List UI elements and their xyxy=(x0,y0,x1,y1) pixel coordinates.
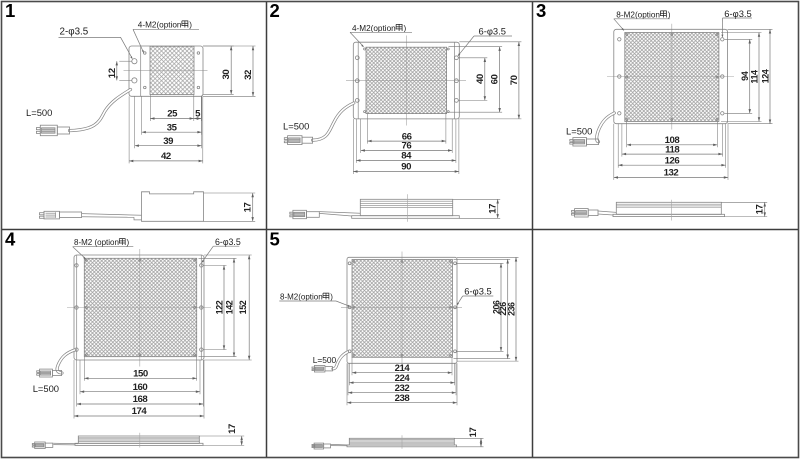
svg-text:8-M2(option: 8-M2(option xyxy=(280,293,323,302)
svg-text:40: 40 xyxy=(475,74,486,84)
svg-text:17: 17 xyxy=(755,205,766,215)
svg-text:17: 17 xyxy=(488,204,499,214)
svg-text:): ) xyxy=(404,24,407,33)
svg-text:L=500: L=500 xyxy=(566,126,592,137)
svg-text:35: 35 xyxy=(167,122,178,133)
svg-text:160: 160 xyxy=(133,382,148,393)
svg-text:118: 118 xyxy=(665,144,680,155)
svg-text:): ) xyxy=(668,11,671,20)
svg-text:4-M2(option: 4-M2(option xyxy=(138,21,182,30)
svg-text:L=500: L=500 xyxy=(313,355,337,365)
svg-text:2-φ3.5: 2-φ3.5 xyxy=(60,26,89,37)
svg-text:70: 70 xyxy=(509,75,520,85)
svg-text:8-M2 (option: 8-M2 (option xyxy=(74,238,119,247)
svg-text:30: 30 xyxy=(221,70,232,80)
svg-text:6-φ3.5: 6-φ3.5 xyxy=(724,8,751,19)
svg-text:60: 60 xyxy=(490,75,501,85)
svg-text:6-φ3.5: 6-φ3.5 xyxy=(479,26,506,37)
svg-text:25: 25 xyxy=(167,109,178,120)
svg-text:152: 152 xyxy=(238,300,248,314)
svg-text:1: 1 xyxy=(5,0,15,21)
svg-text:3: 3 xyxy=(536,0,546,21)
svg-text:L=500: L=500 xyxy=(33,383,59,394)
svg-text:): ) xyxy=(127,238,130,247)
svg-text:17: 17 xyxy=(243,203,254,213)
svg-text:150: 150 xyxy=(133,369,148,380)
svg-text:6-φ3.5: 6-φ3.5 xyxy=(215,237,241,247)
svg-text:122: 122 xyxy=(214,300,224,314)
svg-text:84: 84 xyxy=(401,151,412,162)
svg-text:8-M2(option: 8-M2(option xyxy=(616,11,660,20)
svg-text:6-φ3.5: 6-φ3.5 xyxy=(464,286,491,297)
svg-text:142: 142 xyxy=(224,300,234,314)
svg-text:168: 168 xyxy=(133,394,149,405)
svg-text:): ) xyxy=(330,293,333,302)
svg-text:126: 126 xyxy=(665,155,680,166)
svg-text:17: 17 xyxy=(227,424,238,434)
svg-text:4: 4 xyxy=(5,228,16,249)
svg-text:124: 124 xyxy=(760,69,770,83)
svg-text:114: 114 xyxy=(749,70,759,84)
svg-text:L=500: L=500 xyxy=(283,120,309,131)
svg-text:): ) xyxy=(189,21,192,30)
svg-text:32: 32 xyxy=(243,70,254,80)
svg-text:17: 17 xyxy=(468,428,479,438)
svg-text:4-M2(option: 4-M2(option xyxy=(352,24,396,33)
svg-text:236: 236 xyxy=(506,302,516,316)
svg-text:238: 238 xyxy=(395,393,411,404)
svg-text:L=500: L=500 xyxy=(26,107,52,118)
svg-text:90: 90 xyxy=(401,162,411,173)
svg-text:132: 132 xyxy=(664,168,679,179)
svg-text:174: 174 xyxy=(132,406,148,417)
svg-text:42: 42 xyxy=(161,151,171,162)
svg-text:12: 12 xyxy=(107,68,118,78)
svg-text:2: 2 xyxy=(270,0,280,21)
svg-text:39: 39 xyxy=(163,136,173,147)
svg-text:5: 5 xyxy=(270,228,280,249)
